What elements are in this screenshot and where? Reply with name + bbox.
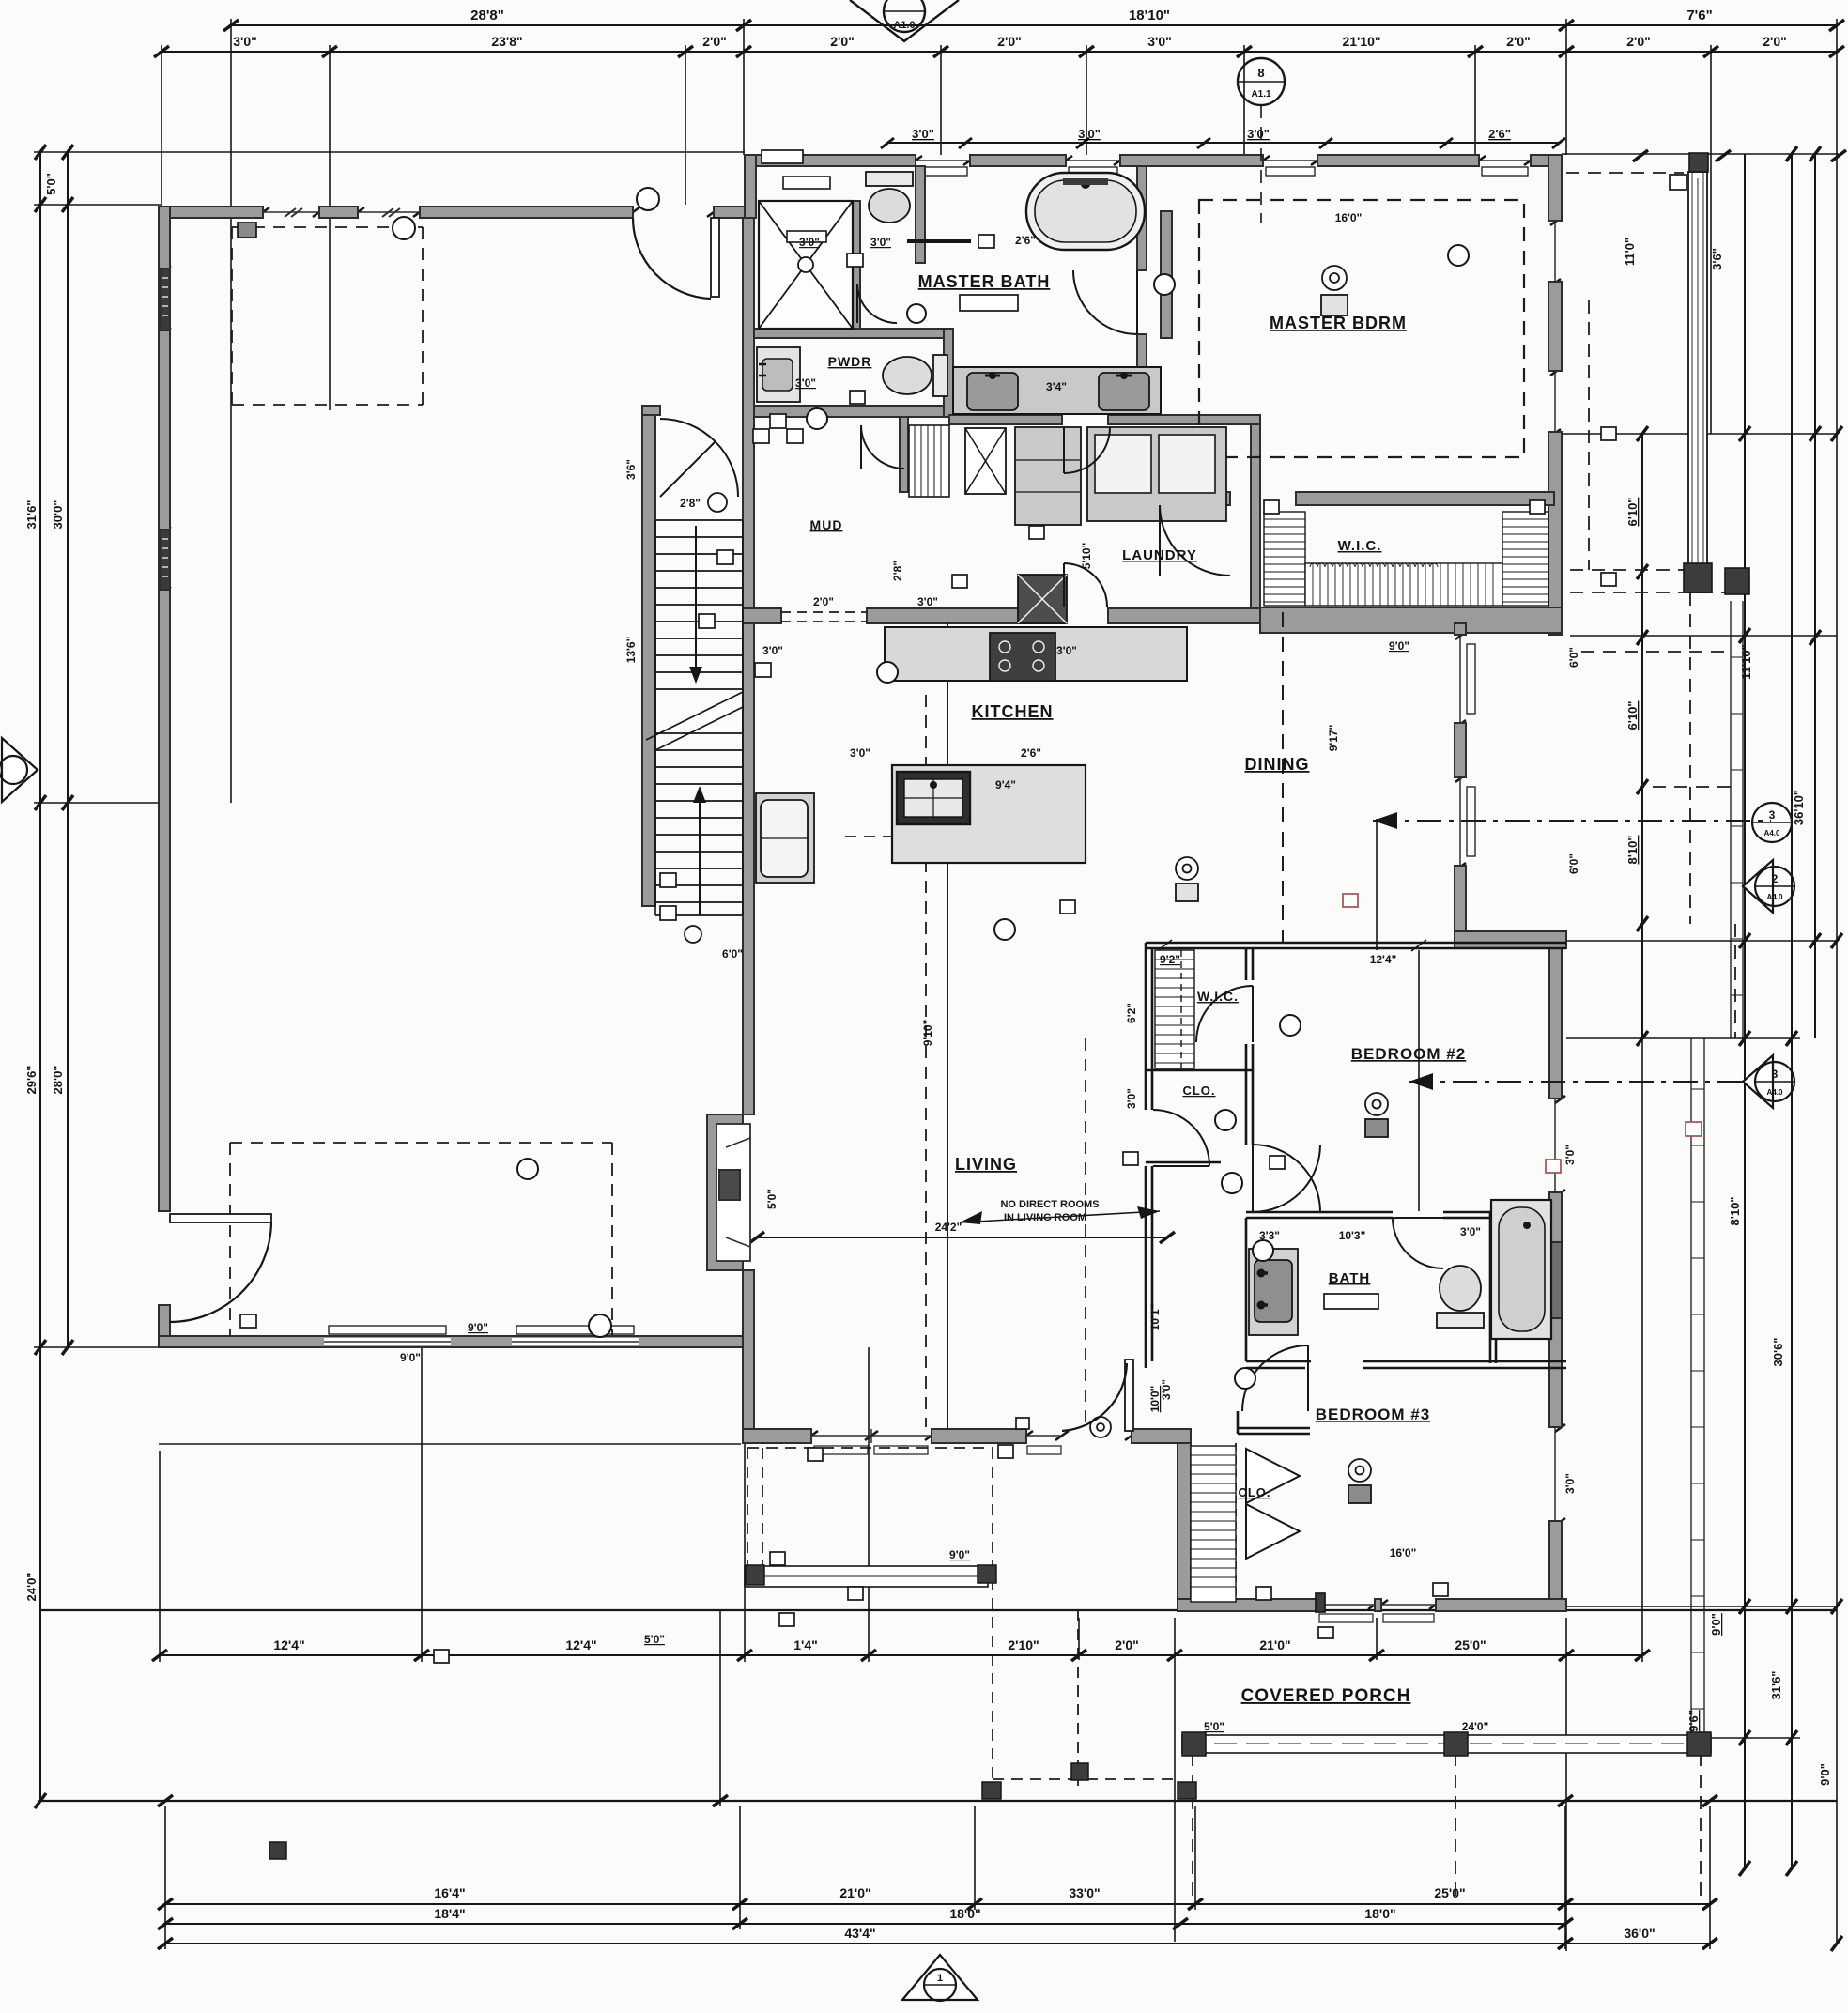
svg-text:28'8": 28'8" bbox=[470, 8, 504, 23]
svg-text:5'0": 5'0" bbox=[1204, 1720, 1224, 1733]
svg-text:2: 2 bbox=[1772, 872, 1779, 885]
svg-text:BEDROOM #3: BEDROOM #3 bbox=[1316, 1406, 1430, 1423]
svg-text:29'6": 29'6" bbox=[24, 1066, 38, 1095]
svg-text:10'1": 10'1" bbox=[1148, 1304, 1162, 1331]
svg-text:13'6": 13'6" bbox=[624, 637, 638, 664]
svg-text:3'0": 3'0" bbox=[1078, 127, 1101, 141]
svg-text:2'0": 2'0" bbox=[1626, 34, 1651, 49]
svg-text:8: 8 bbox=[1257, 66, 1264, 80]
svg-text:3'4": 3'4" bbox=[1046, 380, 1067, 393]
svg-text:21'10": 21'10" bbox=[1342, 34, 1380, 49]
svg-text:1: 1 bbox=[937, 1973, 943, 1984]
svg-text:9'6": 9'6" bbox=[1686, 1710, 1701, 1732]
svg-text:21'0": 21'0" bbox=[839, 1885, 870, 1900]
svg-text:3'6": 3'6" bbox=[624, 459, 638, 480]
svg-text:30'0": 30'0" bbox=[51, 500, 65, 530]
svg-text:KITCHEN: KITCHEN bbox=[972, 702, 1054, 721]
svg-text:11'10": 11'10" bbox=[1739, 644, 1753, 679]
svg-text:24'0": 24'0" bbox=[1462, 1720, 1489, 1733]
svg-text:9'0": 9'0" bbox=[949, 1548, 970, 1561]
svg-text:18'4": 18'4" bbox=[434, 1906, 465, 1921]
svg-text:8'10": 8'10" bbox=[1625, 836, 1640, 865]
svg-text:3'0": 3'0" bbox=[917, 595, 938, 608]
svg-text:COVERED PORCH: COVERED PORCH bbox=[1241, 1686, 1411, 1706]
svg-text:6'0": 6'0" bbox=[1567, 853, 1580, 874]
svg-text:3'0": 3'0" bbox=[799, 236, 820, 249]
svg-text:12'4": 12'4" bbox=[1370, 953, 1397, 966]
svg-text:8'10": 8'10" bbox=[1728, 1197, 1742, 1226]
svg-text:2'0": 2'0" bbox=[1115, 1637, 1139, 1652]
svg-text:9'17": 9'17" bbox=[1327, 725, 1340, 752]
svg-text:21'0": 21'0" bbox=[1259, 1637, 1290, 1652]
svg-text:5'0": 5'0" bbox=[44, 173, 58, 195]
svg-text:33'0": 33'0" bbox=[1069, 1885, 1100, 1900]
svg-text:12'4": 12'4" bbox=[565, 1637, 596, 1652]
svg-text:W.I.C.: W.I.C. bbox=[1338, 538, 1382, 554]
svg-text:9'10": 9'10" bbox=[921, 1020, 934, 1047]
svg-text:12'4": 12'4" bbox=[273, 1637, 304, 1652]
svg-text:BATH: BATH bbox=[1329, 1270, 1371, 1286]
svg-text:9'0": 9'0" bbox=[468, 1321, 488, 1334]
svg-text:2'10": 2'10" bbox=[1008, 1637, 1039, 1652]
svg-text:24'2": 24'2" bbox=[935, 1221, 962, 1234]
svg-text:31'6": 31'6" bbox=[24, 500, 38, 530]
svg-text:DINING: DINING bbox=[1245, 755, 1310, 774]
svg-text:W.I.C.: W.I.C. bbox=[1197, 989, 1239, 1004]
svg-text:10'3": 10'3" bbox=[1339, 1229, 1366, 1242]
svg-text:3'0": 3'0" bbox=[1247, 127, 1270, 141]
svg-text:3'0": 3'0" bbox=[1125, 1088, 1138, 1109]
svg-text:3'0": 3'0" bbox=[1056, 644, 1077, 657]
svg-text:24'0": 24'0" bbox=[24, 1573, 38, 1602]
svg-text:NO DIRECT ROOMS: NO DIRECT ROOMS bbox=[1000, 1199, 1099, 1210]
svg-text:31'6": 31'6" bbox=[1769, 1671, 1783, 1700]
svg-text:16'0": 16'0" bbox=[1335, 211, 1363, 224]
svg-text:30'6": 30'6" bbox=[1771, 1338, 1785, 1367]
svg-text:9'0": 9'0" bbox=[400, 1351, 421, 1364]
svg-text:LIVING: LIVING bbox=[955, 1155, 1017, 1174]
svg-text:A4.0: A4.0 bbox=[1767, 893, 1783, 901]
svg-text:6'10": 6'10" bbox=[1625, 701, 1640, 730]
svg-text:11'0": 11'0" bbox=[1623, 238, 1637, 266]
svg-text:28'0": 28'0" bbox=[51, 1066, 65, 1095]
svg-text:3'0": 3'0" bbox=[912, 127, 934, 141]
svg-text:3: 3 bbox=[1769, 808, 1776, 822]
svg-text:3'0": 3'0" bbox=[1147, 34, 1172, 49]
svg-text:9'4": 9'4" bbox=[995, 778, 1016, 791]
svg-text:3'0": 3'0" bbox=[1563, 1473, 1577, 1494]
svg-text:25'0": 25'0" bbox=[1455, 1637, 1486, 1652]
svg-text:9'2": 9'2" bbox=[1160, 953, 1180, 966]
svg-text:BEDROOM #2: BEDROOM #2 bbox=[1351, 1045, 1466, 1063]
svg-text:23'8": 23'8" bbox=[491, 34, 522, 49]
svg-text:3'0": 3'0" bbox=[1563, 1145, 1577, 1165]
svg-text:2'6": 2'6" bbox=[1488, 127, 1511, 141]
svg-text:3'0": 3'0" bbox=[762, 644, 783, 657]
svg-text:2'0": 2'0" bbox=[1763, 34, 1787, 49]
svg-text:9'0": 9'0" bbox=[1818, 1763, 1832, 1786]
svg-text:7'6": 7'6" bbox=[1686, 8, 1712, 23]
svg-text:MASTER BATH: MASTER BATH bbox=[918, 272, 1051, 291]
svg-text:2'0": 2'0" bbox=[830, 34, 855, 49]
svg-text:CLO.: CLO. bbox=[1182, 1083, 1215, 1098]
svg-text:5'10": 5'10" bbox=[1080, 543, 1093, 570]
svg-text:MUD: MUD bbox=[810, 517, 843, 532]
svg-text:3'0": 3'0" bbox=[1460, 1225, 1481, 1238]
svg-text:3'0": 3'0" bbox=[233, 34, 257, 49]
svg-text:2'0": 2'0" bbox=[997, 34, 1022, 49]
svg-text:36'10": 36'10" bbox=[1792, 790, 1806, 825]
svg-text:18'10": 18'10" bbox=[1129, 8, 1170, 23]
svg-text:18'0": 18'0" bbox=[949, 1906, 980, 1921]
svg-text:2'6": 2'6" bbox=[1015, 234, 1036, 247]
svg-text:A4.0: A4.0 bbox=[1767, 1088, 1783, 1097]
svg-text:9'0": 9'0" bbox=[1709, 1613, 1723, 1636]
svg-text:18'0": 18'0" bbox=[1364, 1906, 1395, 1921]
svg-text:2'8": 2'8" bbox=[891, 561, 904, 581]
svg-text:6'0": 6'0" bbox=[1567, 647, 1580, 668]
svg-text:16'4": 16'4" bbox=[434, 1885, 465, 1900]
svg-text:16'0": 16'0" bbox=[1390, 1546, 1417, 1560]
svg-text:3'0": 3'0" bbox=[795, 376, 816, 390]
svg-text:6'0": 6'0" bbox=[722, 947, 743, 960]
svg-text:3'0": 3'0" bbox=[850, 746, 870, 760]
svg-text:5'0": 5'0" bbox=[765, 1189, 778, 1209]
svg-text:LAUNDRY: LAUNDRY bbox=[1122, 547, 1197, 563]
svg-text:3'6": 3'6" bbox=[1710, 248, 1724, 270]
svg-text:3: 3 bbox=[1772, 1068, 1779, 1081]
svg-text:43'4": 43'4" bbox=[844, 1926, 875, 1941]
svg-text:3'0": 3'0" bbox=[1160, 1379, 1173, 1400]
svg-text:6'2": 6'2" bbox=[1125, 1003, 1138, 1023]
svg-text:1'4": 1'4" bbox=[793, 1637, 818, 1652]
svg-text:2'0": 2'0" bbox=[1506, 34, 1531, 49]
svg-text:9'0": 9'0" bbox=[1389, 639, 1409, 653]
svg-text:PWDR: PWDR bbox=[828, 354, 872, 369]
svg-text:CLO.: CLO. bbox=[1238, 1485, 1270, 1499]
svg-text:36'0": 36'0" bbox=[1624, 1926, 1655, 1941]
svg-text:2'6": 2'6" bbox=[1021, 746, 1041, 760]
svg-text:25'0": 25'0" bbox=[1434, 1885, 1465, 1900]
svg-text:2'0": 2'0" bbox=[813, 595, 834, 608]
svg-text:2'0": 2'0" bbox=[702, 34, 727, 49]
svg-text:A1.1: A1.1 bbox=[1251, 89, 1271, 100]
svg-text:A4.0: A4.0 bbox=[1764, 829, 1780, 837]
svg-text:MASTER BDRM: MASTER BDRM bbox=[1270, 314, 1407, 332]
svg-text:2'8": 2'8" bbox=[680, 497, 701, 510]
svg-text:5'0": 5'0" bbox=[644, 1633, 665, 1646]
svg-text:6'10": 6'10" bbox=[1625, 498, 1640, 527]
svg-text:A1.0: A1.0 bbox=[893, 20, 915, 31]
svg-text:3'0": 3'0" bbox=[870, 236, 891, 249]
